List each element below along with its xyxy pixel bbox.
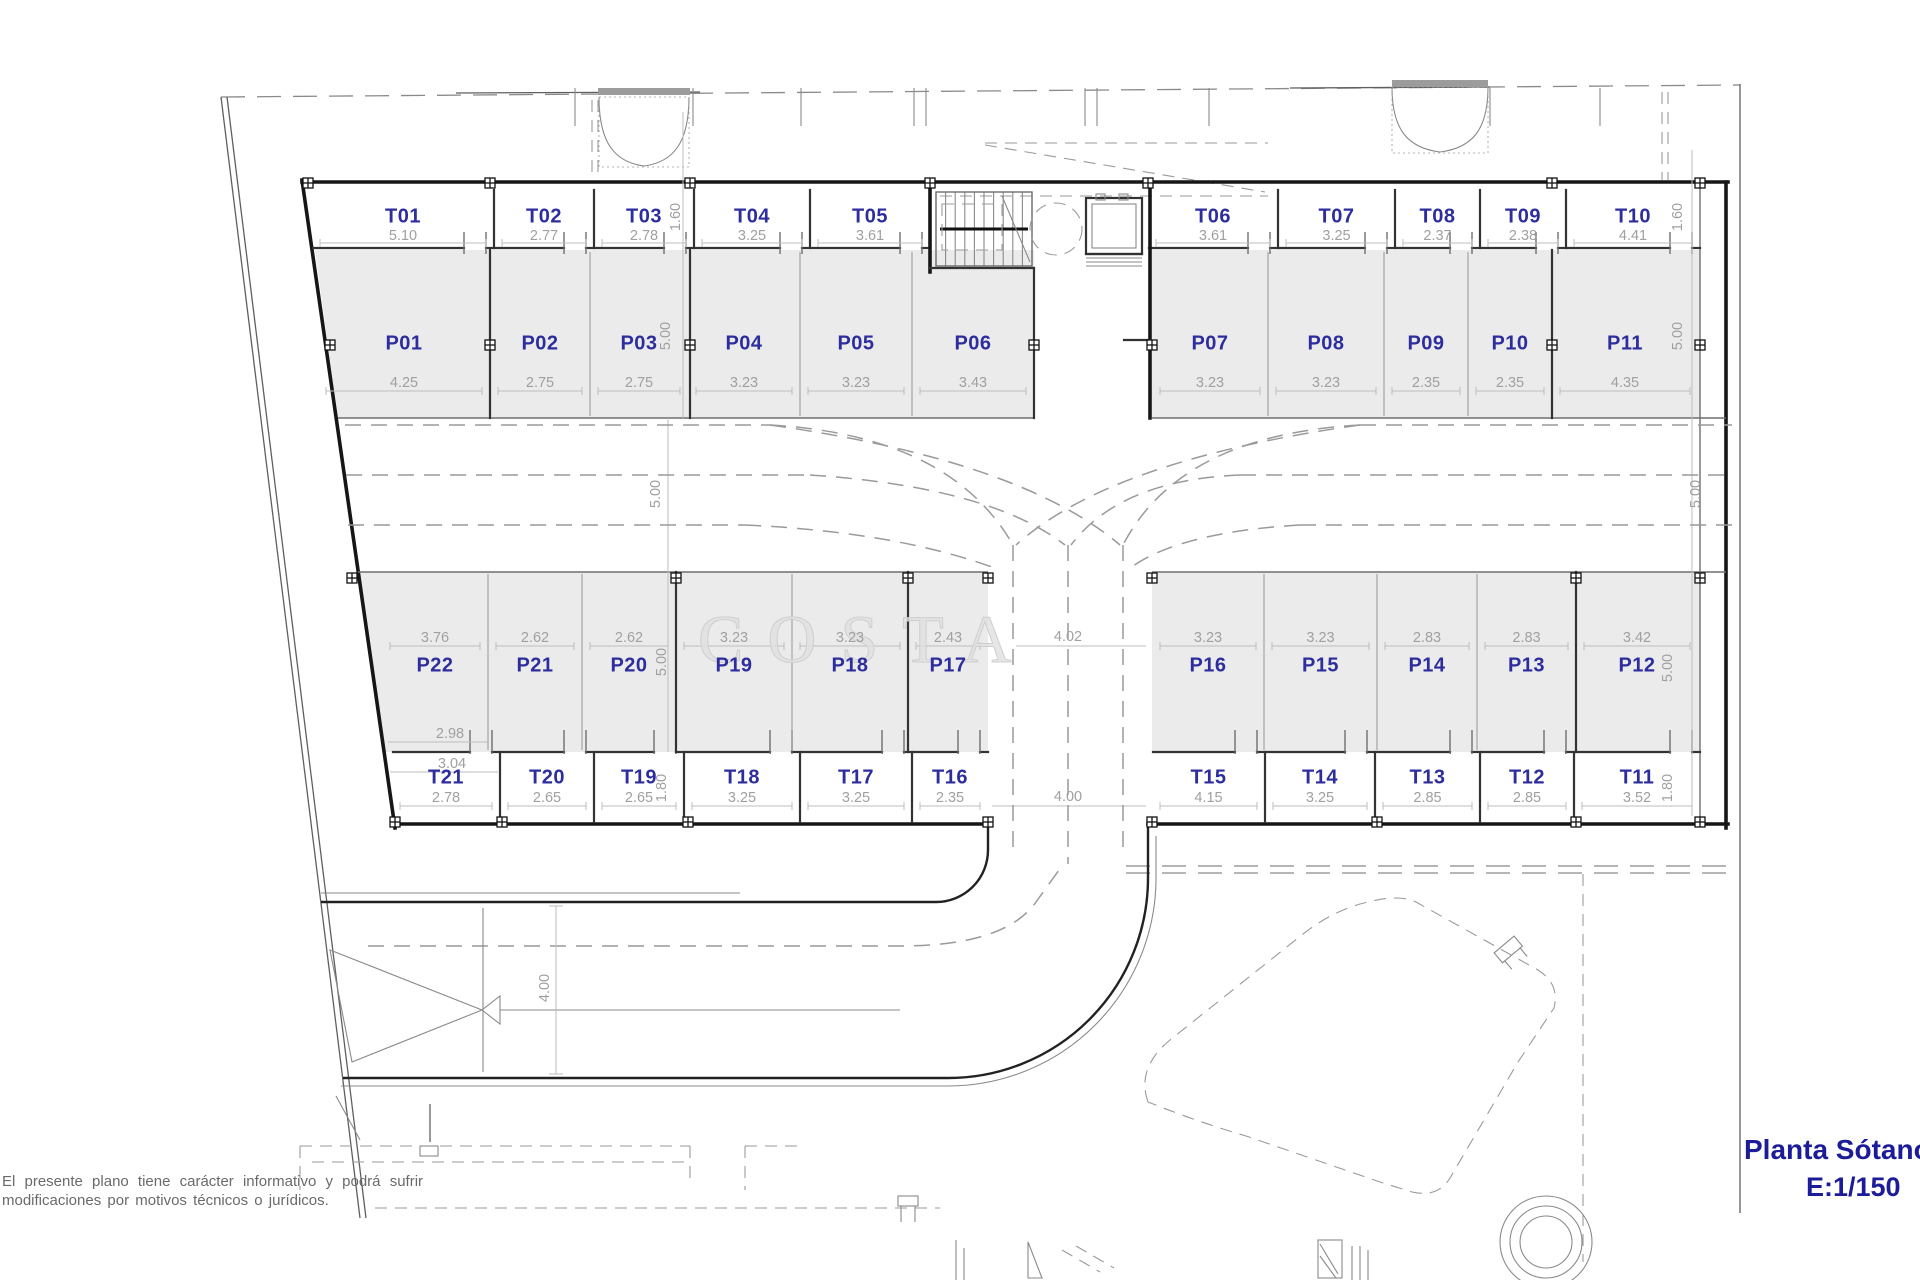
disclaimer-line2: modificaciones por motivos técnicos o ju… — [2, 1191, 472, 1210]
dimension-value: 5.00 — [654, 648, 670, 676]
dimension-value: 5.00 — [1670, 322, 1686, 350]
dimension-value: 1.80 — [1660, 774, 1676, 802]
unit-dim-T05: 3.61 — [856, 228, 884, 244]
dimension-value: 1.80 — [654, 774, 670, 802]
unit-dim-P21: 2.62 — [521, 630, 549, 646]
unit-dim-T12: 2.85 — [1513, 790, 1541, 806]
dimension-value: 2.98 — [436, 726, 464, 742]
unit-label-T20: T20 — [529, 767, 565, 790]
plan-scale: E:1/150 — [1806, 1172, 1920, 1203]
unit-dim-T13: 2.85 — [1413, 790, 1441, 806]
title-block: Planta Sótano E:1/150 — [1744, 1134, 1920, 1203]
dimension-value: 4.02 — [1054, 629, 1082, 645]
unit-label-T14: T14 — [1302, 767, 1338, 790]
unit-dim-P22: 3.76 — [421, 630, 449, 646]
unit-dim-P20: 2.62 — [615, 630, 643, 646]
unit-dim-T09: 2.38 — [1509, 228, 1537, 244]
unit-dim-T07: 3.25 — [1322, 228, 1350, 244]
unit-dim-P08: 3.23 — [1312, 375, 1340, 391]
unit-label-T13: T13 — [1410, 767, 1446, 790]
unit-label-P09: P09 — [1407, 333, 1444, 356]
unit-dim-T10: 4.41 — [1619, 228, 1647, 244]
unit-label-P12: P12 — [1618, 655, 1655, 678]
unit-dim-P09: 2.35 — [1412, 375, 1440, 391]
unit-dim-T06: 3.61 — [1199, 228, 1227, 244]
unit-label-T11: T11 — [1620, 767, 1655, 790]
unit-label-T07: T07 — [1319, 206, 1355, 229]
unit-dim-P05: 3.23 — [842, 375, 870, 391]
unit-label-P07: P07 — [1191, 333, 1228, 356]
unit-label-P16: P16 — [1189, 655, 1226, 678]
dimension-value: 4.00 — [537, 974, 553, 1002]
disclaimer-line1: El presente plano tiene carácter informa… — [2, 1172, 472, 1191]
unit-dim-T16: 2.35 — [936, 790, 964, 806]
unit-dim-T02: 2.77 — [530, 228, 558, 244]
unit-dim-P11: 4.35 — [1611, 375, 1639, 391]
unit-label-T09: T09 — [1505, 206, 1541, 229]
unit-label-P06: P06 — [954, 333, 991, 356]
plan-title: Planta Sótano — [1744, 1134, 1920, 1166]
unit-label-T18: T18 — [724, 767, 760, 790]
unit-dim-T14: 3.25 — [1306, 790, 1334, 806]
dimension-value: 5.00 — [658, 322, 674, 350]
unit-label-P08: P08 — [1307, 333, 1344, 356]
unit-label-T06: T06 — [1195, 206, 1231, 229]
unit-dim-P03: 2.75 — [625, 375, 653, 391]
unit-dim-P17: 2.43 — [934, 630, 962, 646]
unit-dim-P19: 3.23 — [720, 630, 748, 646]
unit-label-T08: T08 — [1420, 206, 1456, 229]
dimension-value: 5.00 — [1688, 480, 1704, 508]
unit-label-T12: T12 — [1509, 767, 1545, 790]
dimension-value: 1.60 — [1670, 203, 1686, 231]
unit-dim-T08: 2.37 — [1423, 228, 1451, 244]
unit-label-P04: P04 — [725, 333, 762, 356]
unit-dim-T04: 3.25 — [738, 228, 766, 244]
unit-dim-P07: 3.23 — [1196, 375, 1224, 391]
dimension-value: 5.00 — [1660, 654, 1676, 682]
unit-label-P10: P10 — [1491, 333, 1528, 356]
unit-label-P20: P20 — [610, 655, 647, 678]
dimension-value: 4.00 — [1054, 789, 1082, 805]
unit-dim-T15: 4.15 — [1194, 790, 1222, 806]
unit-label-T01: T01 — [385, 206, 421, 229]
unit-dim-T03: 2.78 — [630, 228, 658, 244]
unit-label-P01: P01 — [385, 333, 422, 356]
unit-label-P18: P18 — [831, 655, 868, 678]
unit-label-T05: T05 — [852, 206, 888, 229]
unit-dim-T17: 3.25 — [842, 790, 870, 806]
unit-dim-P18: 3.23 — [836, 630, 864, 646]
unit-label-T19: T19 — [621, 767, 657, 790]
unit-label-P02: P02 — [521, 333, 558, 356]
unit-dim-P04: 3.23 — [730, 375, 758, 391]
dimension-value: 1.60 — [668, 203, 684, 231]
unit-dim-P10: 2.35 — [1496, 375, 1524, 391]
unit-label-T15: T15 — [1191, 767, 1227, 790]
unit-label-P17: P17 — [929, 655, 966, 678]
unit-label-P22: P22 — [416, 655, 453, 678]
unit-label-T02: T02 — [526, 206, 562, 229]
unit-dim-T21: 2.78 — [432, 790, 460, 806]
unit-label-P03: P03 — [620, 333, 657, 356]
unit-label-P15: P15 — [1302, 655, 1339, 678]
unit-label-P21: P21 — [516, 655, 553, 678]
unit-dim-P14: 2.83 — [1413, 630, 1441, 646]
unit-label-T16: T16 — [932, 767, 968, 790]
unit-label-T03: T03 — [626, 206, 662, 229]
dimension-value: 3.04 — [438, 756, 466, 772]
unit-label-T04: T04 — [734, 206, 770, 229]
unit-dim-T19: 2.65 — [625, 790, 653, 806]
unit-dim-T18: 3.25 — [728, 790, 756, 806]
unit-label-P14: P14 — [1408, 655, 1445, 678]
unit-dim-P01: 4.25 — [390, 375, 418, 391]
unit-label-T10: T10 — [1615, 206, 1651, 229]
floor-plan-page: COSTA T015.10T022.77T032.78T043.25T053.6… — [0, 0, 1920, 1280]
unit-dim-P15: 3.23 — [1306, 630, 1334, 646]
unit-dim-P13: 2.83 — [1512, 630, 1540, 646]
unit-label-P05: P05 — [837, 333, 874, 356]
unit-dim-P02: 2.75 — [526, 375, 554, 391]
unit-dim-T11: 3.52 — [1623, 790, 1651, 806]
unit-dim-P12: 3.42 — [1623, 630, 1651, 646]
disclaimer-note: El presente plano tiene carácter informa… — [2, 1172, 472, 1210]
unit-label-P11: P11 — [1607, 333, 1643, 356]
unit-dim-P16: 3.23 — [1194, 630, 1222, 646]
unit-label-P13: P13 — [1508, 655, 1545, 678]
unit-label-T17: T17 — [838, 767, 874, 790]
unit-label-P19: P19 — [715, 655, 752, 678]
unit-dim-P06: 3.43 — [959, 375, 987, 391]
unit-dim-T01: 5.10 — [389, 228, 417, 244]
dimension-value: 5.00 — [648, 480, 664, 508]
unit-dim-T20: 2.65 — [533, 790, 561, 806]
